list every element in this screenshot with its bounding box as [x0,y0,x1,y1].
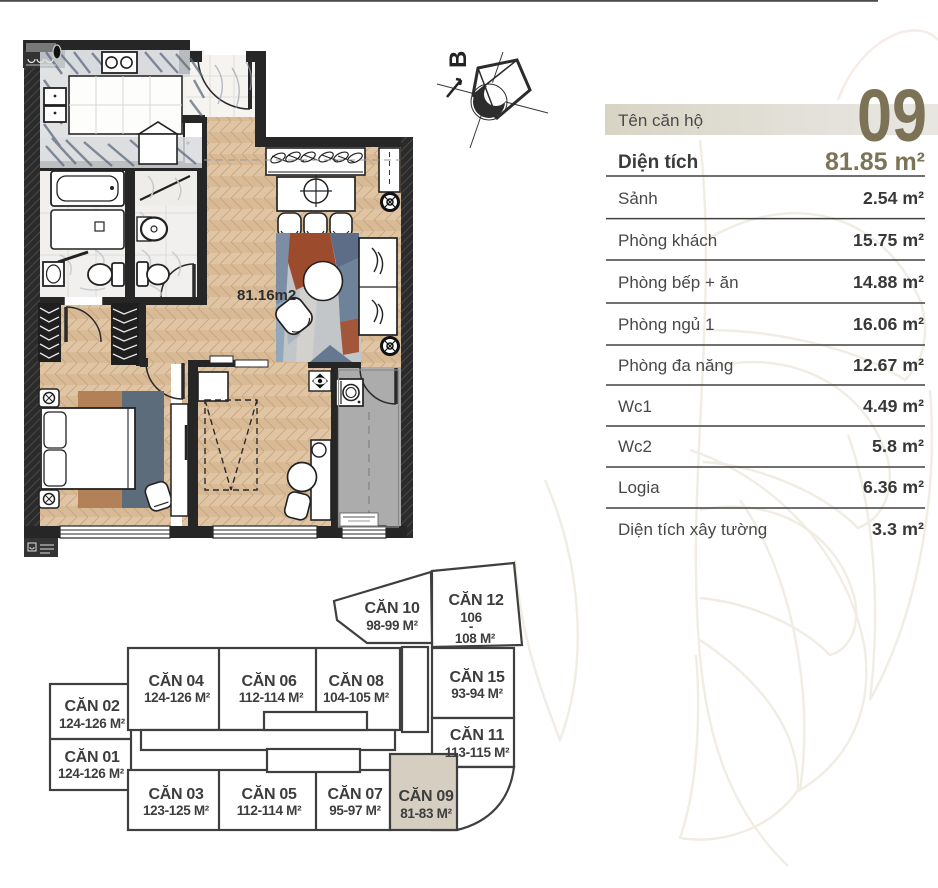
svg-text:CĂN 15: CĂN 15 [449,667,505,686]
svg-text:6.36 m²: 6.36 m² [863,477,924,497]
svg-text:112-114 M²: 112-114 M² [237,803,302,818]
svg-text:108 M²: 108 M² [455,631,496,646]
svg-text:CĂN 02: CĂN 02 [64,696,120,715]
svg-text:09: 09 [857,74,927,157]
svg-text:104-105 M²: 104-105 M² [323,690,390,705]
svg-text:CĂN 06: CĂN 06 [241,671,297,690]
svg-text:16.06 m²: 16.06 m² [853,314,924,334]
svg-text:14.88 m²: 14.88 m² [853,272,924,292]
svg-text:113-115 M²: 113-115 M² [445,745,510,760]
svg-text:5.8 m²: 5.8 m² [872,436,924,456]
svg-text:CĂN 03: CĂN 03 [148,784,204,803]
svg-text:Tên căn hộ: Tên căn hộ [618,111,703,130]
svg-text:Phòng bếp + ăn: Phòng bếp + ăn [618,273,739,292]
svg-text:81.16m2: 81.16m2 [237,287,296,304]
svg-text:CĂN 12: CĂN 12 [448,590,504,609]
svg-text:Wc2: Wc2 [618,437,652,456]
svg-text:CĂN 04: CĂN 04 [148,671,204,690]
svg-text:112-114 M²: 112-114 M² [239,690,304,705]
svg-text:124-126 M²: 124-126 M² [59,716,126,731]
svg-text:CĂN 09: CĂN 09 [398,786,454,805]
svg-text:98-99 M²: 98-99 M² [366,618,418,633]
svg-text:Phòng khách: Phòng khách [618,231,717,250]
svg-text:CĂN 11: CĂN 11 [450,725,505,744]
svg-text:12.67 m²: 12.67 m² [853,355,924,375]
svg-text:CĂN 10: CĂN 10 [364,598,420,617]
svg-text:Wc1: Wc1 [618,397,652,416]
svg-text:Sảnh: Sảnh [618,189,658,208]
svg-text:CĂN 07: CĂN 07 [327,784,383,803]
svg-text:93-94 M²: 93-94 M² [451,686,503,701]
svg-text:124-126 M²: 124-126 M² [58,766,125,781]
svg-text:CĂN 01: CĂN 01 [64,747,120,766]
svg-text:CĂN 05: CĂN 05 [241,784,297,803]
svg-text:Phòng đa năng: Phòng đa năng [618,356,733,375]
svg-text:Logia: Logia [618,478,660,497]
svg-text:B: B [445,51,472,68]
svg-text:2.54 m²: 2.54 m² [863,188,924,208]
svg-text:124-126 M²: 124-126 M² [144,690,211,705]
svg-text:CĂN 08: CĂN 08 [328,671,384,690]
svg-text:95-97 M²: 95-97 M² [329,803,381,818]
svg-text:Diện tích: Diện tích [618,152,698,173]
svg-text:81-83 M²: 81-83 M² [400,806,452,821]
svg-text:123-125 M²: 123-125 M² [143,803,210,818]
svg-text:4.49 m²: 4.49 m² [863,396,924,416]
svg-text:15.75 m²: 15.75 m² [853,230,924,250]
svg-text:3.3 m²: 3.3 m² [872,519,924,539]
svg-text:Phòng ngủ 1: Phòng ngủ 1 [618,315,714,334]
svg-text:81.85 m²: 81.85 m² [825,148,925,176]
svg-text:Diện tích xây tường: Diện tích xây tường [618,520,767,539]
